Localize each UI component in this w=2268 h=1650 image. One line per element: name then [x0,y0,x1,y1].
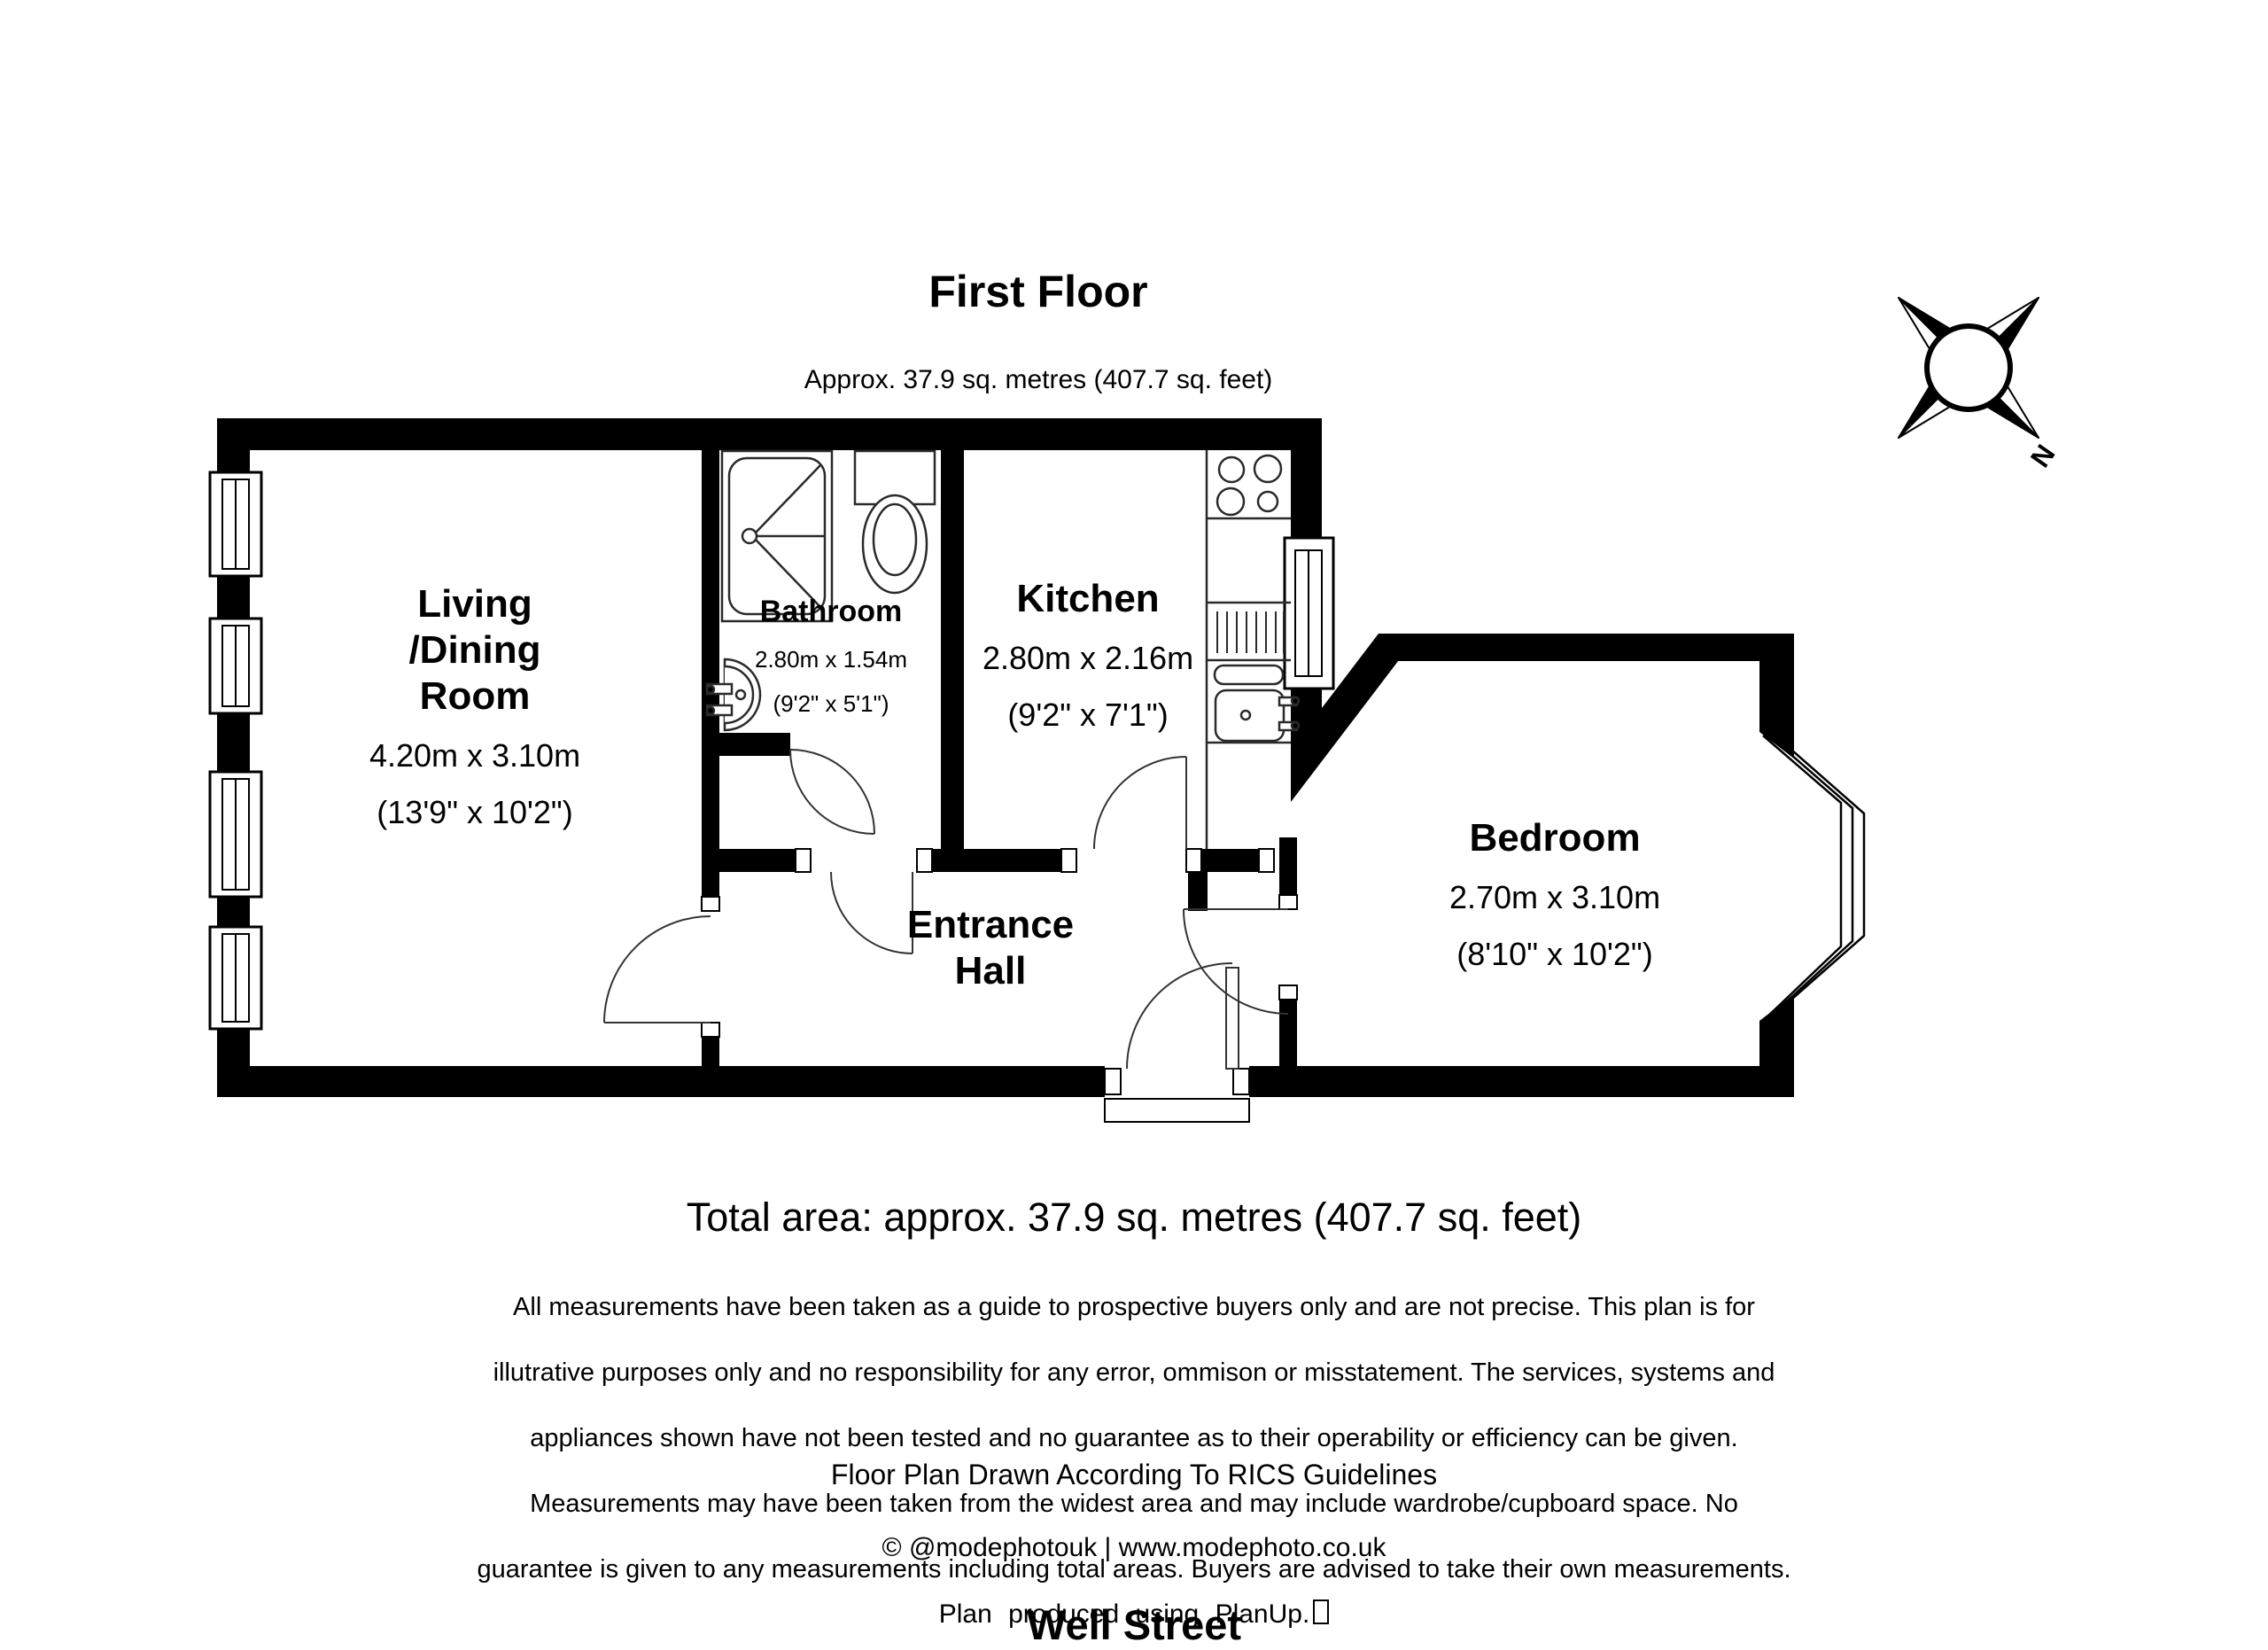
kitchen-door-icon [1094,757,1186,849]
room-name: Living /Dining Room [298,581,652,720]
room-label-kitchen: Kitchen 2.80m x 2.16m (9'2" x 7'1") [911,560,1265,751]
window-icon [210,472,261,576]
room-label-bedroom: Bedroom 2.70m x 3.10m (8'10" x 10'2") [1378,799,1732,991]
disclaimer-line: All measurements have been taken as a gu… [248,1291,2020,1324]
total-area-text: Total area: approx. 37.9 sq. metres (407… [248,1195,2020,1241]
disclaimer-line: appliances shown have not been tested an… [248,1422,2020,1455]
credit-text: © @modephotouk | www.modephoto.co.uk [248,1533,2020,1563]
living-room-door-icon [604,916,711,1023]
room-dims-metric: 2.80m x 2.16m [911,638,1265,679]
window-icon [210,927,261,1029]
window-icon-kitchen [1285,538,1333,689]
room-dims-imperial: (13'9" x 10'2") [298,792,652,833]
bathroom-door-icon [790,750,874,834]
street-address: Well Street [248,1600,2020,1649]
room-dims-metric: 4.20m x 3.10m [298,735,652,776]
page-title: First Floor [773,266,1304,317]
disclaimer: All measurements have been taken as a gu… [248,1258,2020,1619]
room-name: Entrance Hall [827,902,1154,994]
room-dims-imperial: (9'2" x 7'1") [911,695,1265,735]
window-icon [210,772,261,897]
disclaimer-line: illutrative purposes only and no respons… [248,1357,2020,1389]
floorplan-page: First Floor Approx. 37.9 sq. metres (407… [0,0,2268,1650]
front-door-threshold [1105,1099,1249,1122]
window-icon [210,619,261,713]
room-name: Bedroom [1378,815,1732,861]
rics-guidelines-text: Floor Plan Drawn According To RICS Guide… [248,1459,2020,1491]
room-dims-imperial: (8'10" x 10'2") [1378,934,1732,975]
disclaimer-line: Measurements may have been taken from th… [248,1488,2020,1521]
room-name: Kitchen [911,576,1265,622]
bay-window-icon [1763,735,1864,1021]
room-label-living: Living /Dining Room 4.20m x 3.10m (13'9"… [298,565,652,849]
room-label-hall: Entrance Hall [827,886,1154,1010]
page-subtitle: Approx. 37.9 sq. metres (407.7 sq. feet) [684,365,1393,395]
hob-icon [1217,455,1281,515]
compass-icon [1899,298,2039,438]
room-dims-metric: 2.70m x 3.10m [1378,877,1732,918]
